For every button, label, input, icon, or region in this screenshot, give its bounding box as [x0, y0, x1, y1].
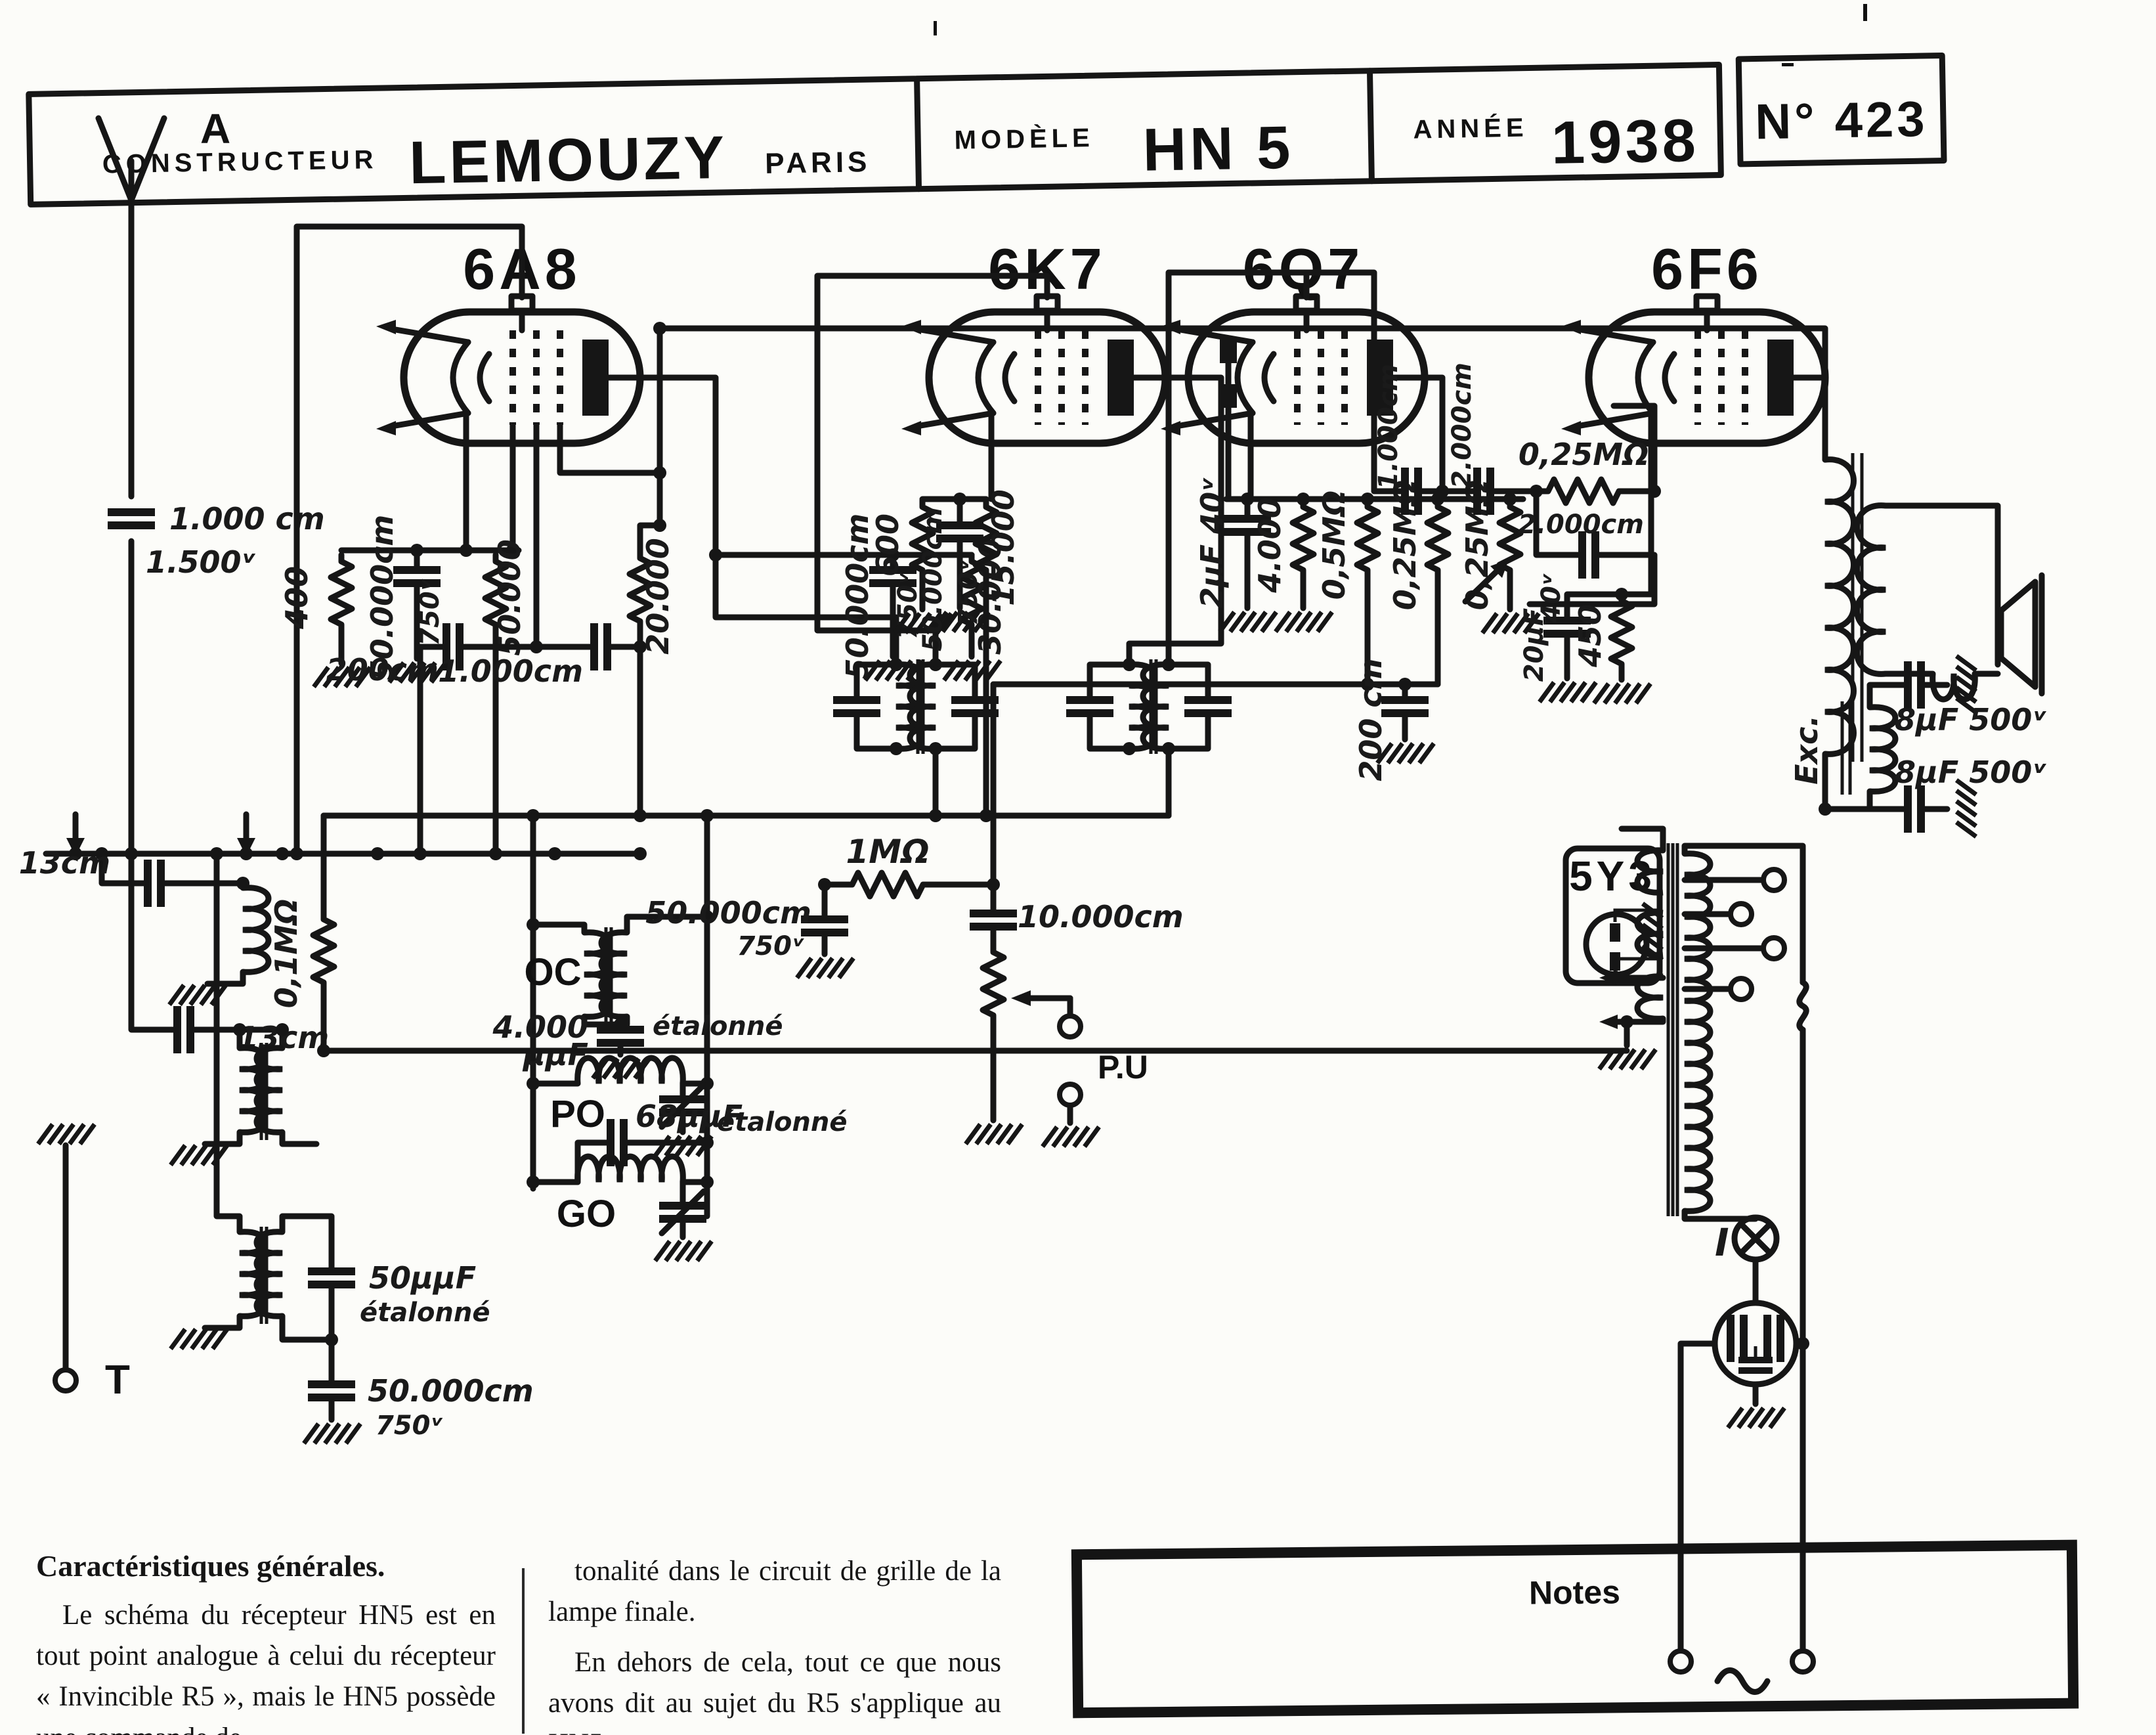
r400-value: 400	[279, 566, 314, 630]
wire	[205, 1316, 240, 1328]
etalonne-label-3: étalonné	[717, 1107, 848, 1137]
resistor-025m-h-icon	[1536, 479, 1631, 503]
sheet-number: N° 423	[1755, 91, 1929, 150]
scan-speck	[934, 21, 937, 35]
v750-e-value: 750ᵛ	[737, 931, 805, 961]
wire	[922, 414, 991, 499]
if-transformer-1	[833, 658, 999, 755]
capacitor-8uf-b-icon	[1904, 785, 1925, 833]
c1000-a-value: 1.000cm	[438, 653, 583, 689]
pilot-lamp-label: I	[1715, 1220, 1729, 1265]
tube-6f6-label: 6F6	[1651, 236, 1763, 301]
ground-icon	[38, 1124, 95, 1144]
footer-paragraph-2: tonalité dans le circuit de grille de la…	[548, 1551, 1001, 1633]
footer-paragraph-1: Le schéma du récepteur HN5 est en tout p…	[36, 1595, 496, 1735]
v40-value: 40ᵛ	[1536, 573, 1566, 623]
pt-primary	[1685, 854, 1710, 1212]
cap-50pf-value: 50μμF	[369, 1260, 476, 1296]
antenna-coil-1	[243, 888, 269, 973]
header-plate: CONSTRUCTEUR LEMOUZY PARIS MODÈLE HN 5 A…	[29, 56, 1945, 205]
capacitor-1000cm-icon	[590, 623, 611, 670]
v750-a-value: 750ᵛ	[415, 578, 445, 646]
footer-column-2: tonalité dans le circuit de grille de la…	[548, 1551, 1001, 1735]
band-go-label: GO	[557, 1193, 616, 1235]
speaker-icon	[2001, 575, 2042, 693]
antenna-cap-voltage: 1.500ᵛ	[146, 544, 257, 580]
ground-icon	[304, 1424, 360, 1443]
scan-speck	[1863, 4, 1867, 21]
ground-icon	[171, 1329, 227, 1349]
resistor-025m-a-icon	[1427, 500, 1448, 586]
r50k-value: 50.000	[492, 539, 527, 656]
r025m-h-value: 0,25MΩ	[1519, 437, 1649, 472]
schematic-page: CONSTRUCTEUR LEMOUZY PARIS MODÈLE HN 5 A…	[0, 0, 2156, 1735]
c2uf-value: 2μF 40ᵛ	[1194, 477, 1230, 608]
r4k-value: 4.000	[1252, 497, 1287, 594]
ground-icon	[1276, 612, 1332, 632]
field-coil	[1870, 707, 1895, 792]
schematic-drawing: A 1.000 cm 1.500ᵛ 13cm 13cm	[19, 105, 2048, 1692]
c8uf-a-value: 8μF 500ᵛ	[1895, 702, 2047, 737]
pot-wiper-head	[1011, 990, 1031, 1006]
tube-6a8	[376, 296, 640, 443]
volume-pot-icon	[983, 946, 1004, 1031]
modele-label: MODÈLE	[954, 123, 1094, 155]
wire	[560, 328, 660, 525]
pickup-label: P.U	[1098, 1049, 1148, 1086]
r600-value: 600	[870, 514, 905, 577]
resistor-400-icon	[331, 555, 352, 640]
band-po-label: PO	[550, 1093, 605, 1135]
cap-750v-label: 750ᵛ	[376, 1411, 444, 1441]
ground-icon	[966, 1124, 1022, 1144]
wire-6a8-topcap	[297, 227, 522, 854]
arrow-icon	[1599, 1015, 1618, 1029]
c10k-value: 10.000cm	[1018, 899, 1184, 934]
cap-13cm-value: 13cm	[19, 845, 110, 881]
schematic-canvas: CONSTRUCTEUR LEMOUZY PARIS MODÈLE HN 5 A…	[0, 0, 2156, 1735]
wire	[282, 1132, 316, 1144]
resistor-05m-icon	[1357, 500, 1378, 586]
wire	[102, 854, 243, 888]
header-divider-1	[917, 79, 919, 189]
c1000-b-value: 1.000cm	[1373, 364, 1404, 490]
pickup-terminal-2	[1060, 1084, 1081, 1105]
footer-paragraph-3: En dehors de cela, tout ce que nous avon…	[548, 1642, 1001, 1735]
field-coil-label: Exc.	[1789, 715, 1824, 785]
wire	[1825, 754, 1870, 809]
power-transformer-core	[1668, 843, 1677, 1216]
brand-city: PARIS	[765, 146, 871, 180]
ground-icon	[797, 958, 853, 978]
c50k-c-value: 50.000cm	[918, 507, 948, 651]
footer-heading: Caractéristiques générales.	[36, 1545, 496, 1589]
go-coil	[578, 1156, 683, 1182]
ground-icon	[1220, 612, 1276, 632]
annee-label: ANNÉE	[1413, 113, 1528, 144]
cap-50000-value: 50.000cm	[368, 1373, 534, 1409]
switch-stems	[75, 814, 246, 841]
scan-speck	[1782, 63, 1794, 66]
brand-name: LEMOUZY	[408, 124, 727, 196]
pickup-terminal-1	[1060, 1016, 1081, 1037]
wire	[207, 972, 243, 984]
ground-icon	[655, 1241, 712, 1261]
c200-a-value: 200cm	[326, 652, 439, 688]
c2000-a-value: 2.000cm	[1447, 362, 1477, 489]
wire	[282, 1316, 332, 1340]
c8uf-b-value: 8μF 500ᵛ	[1895, 755, 2047, 790]
capacitor-50pf-icon	[308, 1267, 355, 1288]
etalonne-label: étalonné	[360, 1298, 490, 1328]
tap-terminal	[1763, 869, 1784, 890]
r20k-value: 20.000	[640, 538, 676, 655]
r15k-value: 15.000	[985, 489, 1021, 606]
ground-icon	[1043, 1127, 1099, 1147]
tap-terminal	[1763, 938, 1784, 959]
resistor-4000-icon	[1293, 500, 1314, 586]
fuse-squiggle	[1800, 982, 1806, 1030]
wire	[1886, 506, 1998, 674]
earth-terminal	[55, 1370, 76, 1391]
column-divider	[522, 1568, 525, 1734]
r01m-value: 0,1MΩ	[269, 899, 304, 1008]
resistor-1m-icon	[840, 873, 935, 896]
tube-6f6	[1561, 296, 1825, 443]
ground-icon	[1728, 1408, 1784, 1428]
capacitor-10000cm-icon	[970, 910, 1017, 931]
wire	[205, 1132, 240, 1144]
c2000-b-value: 2.000cm	[1518, 510, 1644, 540]
tube-6q7-label: 6Q7	[1243, 236, 1364, 301]
notes-title: Notes	[1082, 1569, 2067, 1616]
band-oc-label: OC	[525, 951, 582, 994]
antenna-capacitor-icon	[108, 508, 155, 529]
wire-6q7-anode	[1425, 378, 1442, 491]
r1m-value: 1MΩ	[846, 833, 929, 871]
footer-column-1: Caractéristiques générales. Le schéma du…	[36, 1545, 496, 1735]
r450-value: 450	[1572, 604, 1608, 668]
tap-terminal	[1731, 978, 1752, 999]
header-divider-2	[1369, 71, 1371, 181]
antenna-cap-value: 1.000 cm	[169, 501, 325, 537]
etalonne-label-2: étalonné	[653, 1011, 783, 1042]
tube-6k7	[901, 296, 1165, 443]
notes-box: Notes	[1071, 1540, 2079, 1719]
line-filter-icon	[1715, 1303, 1796, 1384]
earth-terminal-label: T	[105, 1357, 134, 1403]
antenna-terminal-label: A	[200, 105, 234, 152]
capacitor-13cm-icon	[144, 860, 165, 907]
if-transformer-2	[1066, 658, 1232, 755]
ground-icon	[1540, 682, 1596, 702]
annee-value: 1938	[1551, 107, 1699, 177]
capacitor-50000cm-icon	[308, 1380, 355, 1401]
r05m-value: 0,5MΩ	[1316, 491, 1352, 600]
modele-value: HN 5	[1142, 114, 1294, 184]
antenna-icon	[98, 118, 164, 269]
c200-b-value: 200 cm	[1353, 658, 1389, 781]
tap-terminal	[1731, 904, 1752, 925]
ground-icon	[1594, 684, 1650, 703]
resistor-01m-icon	[313, 913, 334, 998]
c50k-e-value: 50.000cm	[645, 895, 811, 931]
capacitor-13cm-icon	[173, 1006, 194, 1053]
pilot-lamp-icon	[1735, 1218, 1777, 1260]
capacitor-4000pf-icon	[597, 1026, 644, 1047]
